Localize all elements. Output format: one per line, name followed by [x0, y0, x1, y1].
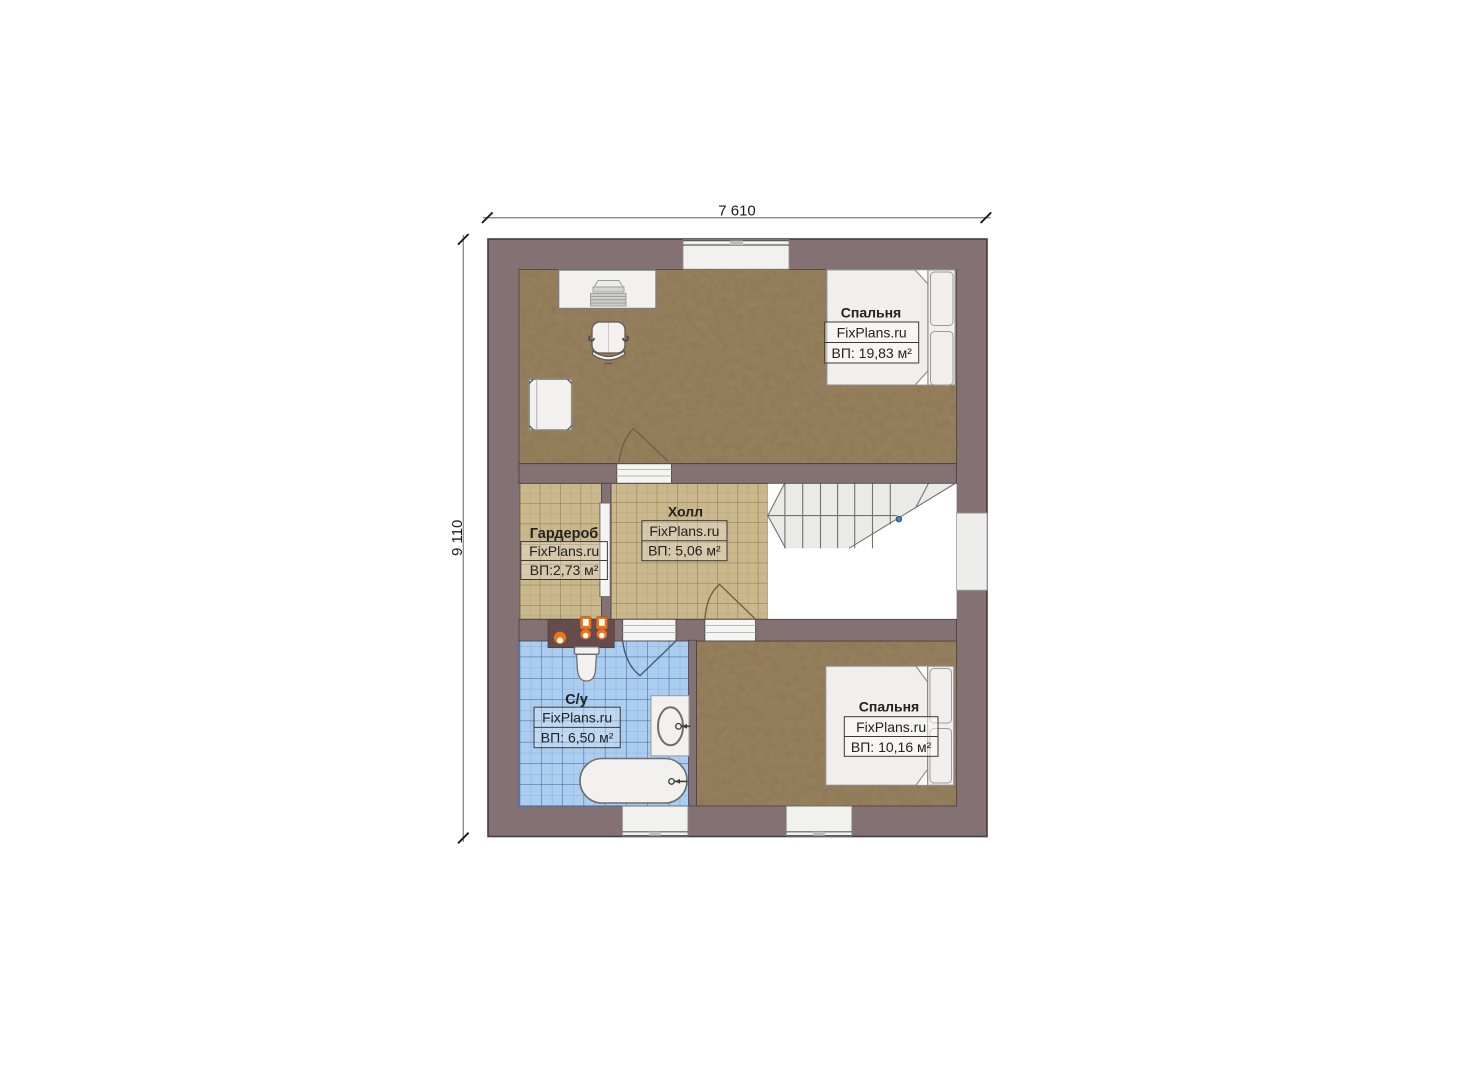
svg-text:С/у: С/у [565, 692, 588, 708]
svg-text:Спальня: Спальня [859, 699, 919, 715]
svg-text:9 110: 9 110 [449, 520, 466, 556]
svg-text:FixPlans.ru: FixPlans.ru [856, 719, 926, 735]
svg-text:Спальня: Спальня [841, 305, 901, 321]
svg-text:ВП: 5,06 м²: ВП: 5,06 м² [648, 543, 721, 559]
svg-text:FixPlans.ru: FixPlans.ru [542, 710, 612, 726]
svg-text:ВП: 6,50 м²: ВП: 6,50 м² [541, 730, 614, 746]
svg-text:Холл: Холл [668, 504, 703, 520]
svg-text:FixPlans.ru: FixPlans.ru [837, 325, 907, 341]
svg-text:ВП: 19,83 м²: ВП: 19,83 м² [832, 345, 913, 361]
svg-text:ВП:2,73 м²: ВП:2,73 м² [530, 562, 599, 578]
svg-text:7 610: 7 610 [718, 203, 756, 220]
svg-text:FixPlans.ru: FixPlans.ru [649, 523, 719, 539]
svg-text:FixPlans.ru: FixPlans.ru [529, 543, 599, 559]
svg-text:Гардероб: Гардероб [530, 526, 599, 542]
svg-text:ВП: 10,16 м²: ВП: 10,16 м² [851, 739, 932, 755]
